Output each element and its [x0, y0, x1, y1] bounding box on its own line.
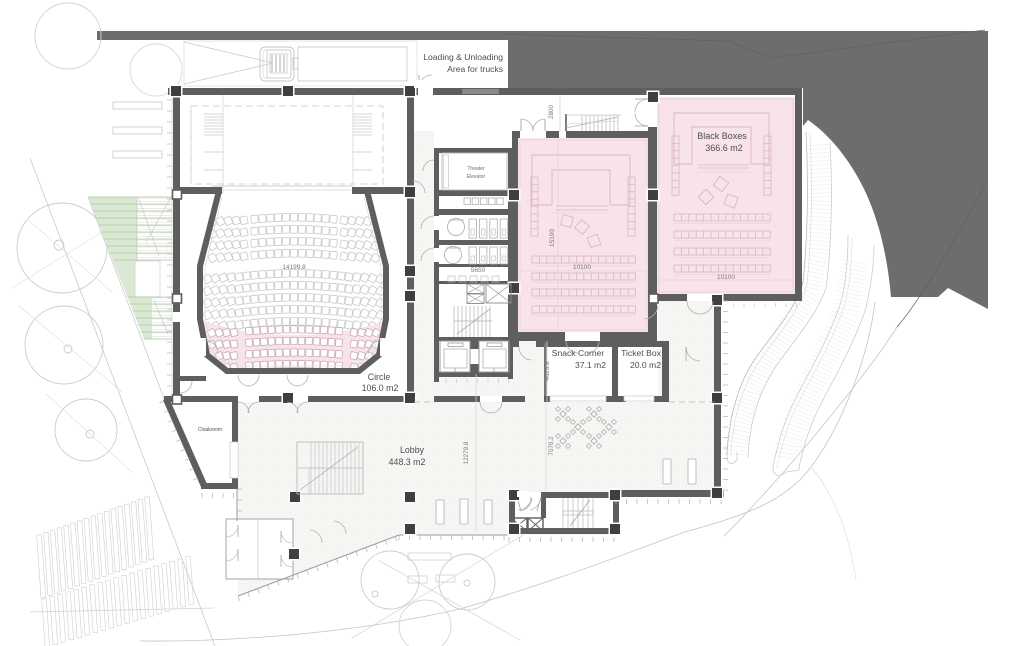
svg-text:12279.8: 12279.8 — [463, 441, 470, 464]
svg-text:Theater: Theater — [467, 166, 485, 172]
svg-text:Cloakroom: Cloakroom — [198, 427, 222, 433]
svg-text:Snack Corner: Snack Corner — [552, 348, 605, 358]
svg-text:14199.8: 14199.8 — [282, 264, 306, 271]
svg-text:Area for trucks: Area for trucks — [447, 64, 503, 74]
svg-text:7076.2: 7076.2 — [548, 436, 555, 456]
svg-text:10100: 10100 — [573, 264, 591, 271]
svg-text:5650: 5650 — [471, 267, 486, 274]
svg-text:Loading & Unloading: Loading & Unloading — [423, 52, 503, 62]
svg-text:Ticket Box: Ticket Box — [621, 348, 661, 358]
svg-text:10100: 10100 — [717, 274, 735, 281]
svg-text:4623.8: 4623.8 — [544, 361, 551, 381]
svg-text:37.1 m2: 37.1 m2 — [575, 360, 606, 370]
svg-text:Circle: Circle — [368, 372, 391, 382]
svg-text:448.3 m2: 448.3 m2 — [389, 457, 426, 467]
svg-text:15100: 15100 — [549, 229, 556, 247]
svg-text:Black Boxes: Black Boxes — [697, 131, 747, 141]
svg-text:20.0 m2: 20.0 m2 — [630, 360, 661, 370]
svg-text:Elevator: Elevator — [467, 174, 486, 180]
svg-text:Lobby: Lobby — [400, 445, 425, 455]
svg-text:106.0 m2: 106.0 m2 — [362, 383, 399, 393]
svg-text:2800: 2800 — [548, 105, 555, 120]
svg-text:366.6 m2: 366.6 m2 — [705, 143, 743, 153]
